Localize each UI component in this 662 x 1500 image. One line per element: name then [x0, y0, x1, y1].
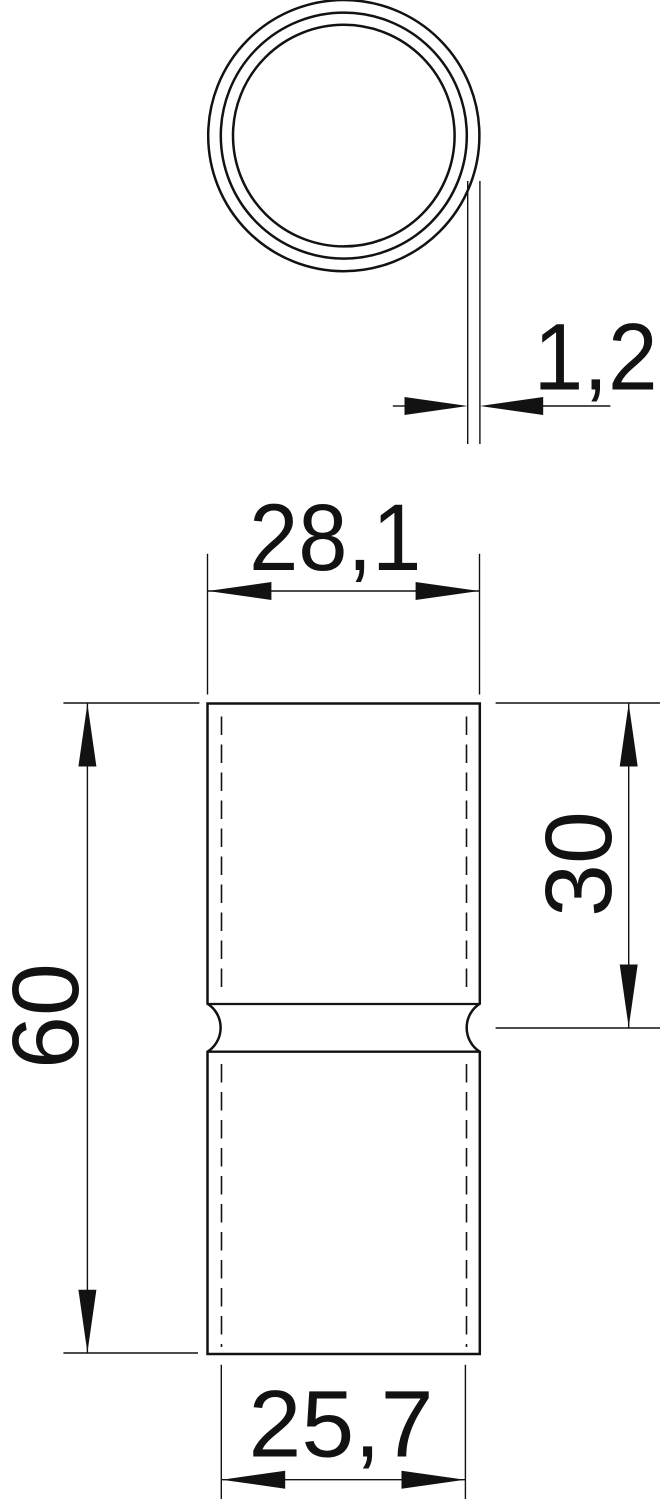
svg-text:28,1: 28,1 [249, 485, 421, 591]
svg-text:30: 30 [526, 811, 632, 917]
svg-text:1,2: 1,2 [534, 304, 658, 410]
svg-text:60: 60 [0, 963, 99, 1069]
svg-text:25,7: 25,7 [249, 1371, 434, 1477]
